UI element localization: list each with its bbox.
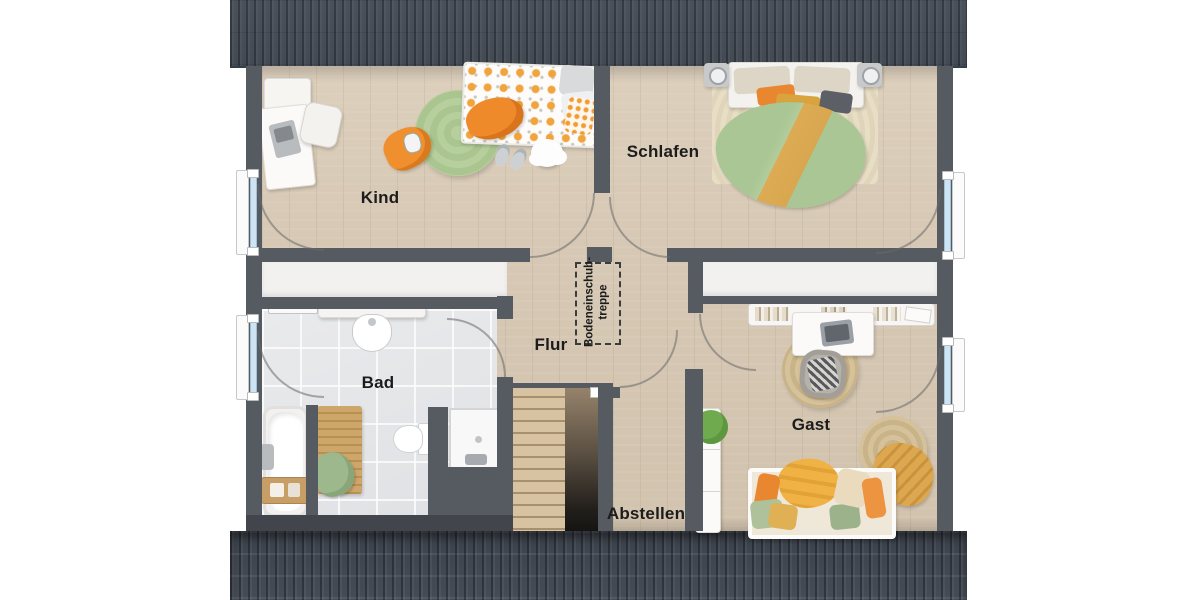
- window-cap-gast-bottom: [942, 404, 954, 413]
- bad-shower-fixture: [465, 454, 487, 465]
- bad-caddy-item1: [270, 483, 284, 497]
- window-cap-bad-bottom: [247, 392, 259, 401]
- attic-hatch-label: Bodeneinschub- treppe: [583, 257, 612, 347]
- wall-bad-bottom: [246, 515, 513, 531]
- wall-kind-bottom: [262, 248, 530, 262]
- roof-band-top: [230, 0, 967, 68]
- window-glass-bad: [250, 317, 257, 398]
- attic-hatch-label-line2: treppe: [598, 284, 610, 319]
- gast-books-3: [873, 307, 901, 321]
- window-glass-schlafen: [944, 174, 951, 257]
- schlafen-nightstand-right: [857, 63, 882, 87]
- window-frame-gast: [952, 338, 965, 412]
- schlafen-lamp-left: [709, 67, 727, 85]
- gast-laptop-screen: [824, 324, 850, 343]
- wall-kind-schlafen: [594, 66, 610, 193]
- bad-toilet-bowl: [393, 425, 423, 453]
- room-label-abstellen: Abstellen: [607, 504, 685, 524]
- exterior-wall-right: [937, 66, 953, 531]
- wall-bad-right-upper: [497, 296, 513, 319]
- wall-tub-partition: [306, 405, 318, 517]
- room-label-kind: Kind: [361, 188, 400, 208]
- wall-corner-stair: [598, 387, 620, 398]
- knee-wall-schlafen: [692, 262, 937, 297]
- bad-shower-drain: [475, 436, 482, 443]
- gast-pillow-mustard: [767, 502, 798, 531]
- window-cap-gast-top: [942, 337, 954, 346]
- room-label-schlafen: Schlafen: [627, 142, 699, 162]
- room-label-bad: Bad: [362, 373, 395, 393]
- knee-wall-kind: [262, 262, 507, 298]
- gast-shelf-box: [904, 306, 932, 323]
- kind-pillow-dotted: [563, 96, 596, 136]
- gast-books-1: [755, 307, 789, 321]
- stairwell-void: [565, 386, 598, 531]
- wall-gast-top: [690, 296, 937, 304]
- room-label-gast: Gast: [792, 415, 831, 435]
- window-cap-bad-top: [247, 314, 259, 323]
- room-label-flur: Flur: [535, 335, 568, 355]
- exterior-wall-left: [246, 66, 262, 531]
- roof-band-bottom: [230, 531, 967, 600]
- window-cap-kind-bottom: [247, 247, 259, 256]
- bad-tub-faucet: [260, 444, 274, 470]
- floor-plan-canvas: Bodeneinschub- treppe Kind Schlafen Flur…: [0, 0, 1200, 600]
- window-cap-schlafen-bottom: [942, 251, 954, 260]
- window-glass-gast: [944, 340, 951, 410]
- bad-sink: [352, 314, 392, 352]
- bad-sink-drain: [368, 318, 376, 326]
- attic-hatch-label-line1: Bodeneinschub-: [584, 257, 596, 347]
- window-cap-kind-top: [247, 169, 259, 178]
- kind-cloud-table: [531, 139, 563, 167]
- wall-schlafen-bottom: [667, 248, 937, 262]
- bad-caddy-item2: [288, 483, 300, 497]
- window-cap-schlafen-top: [942, 171, 954, 180]
- wall-gast-left-lower: [685, 369, 703, 531]
- wall-toilet-back: [428, 407, 448, 469]
- wall-bad-top: [262, 297, 510, 309]
- window-frame-bad: [236, 315, 249, 400]
- wall-gast-left-upper: [688, 257, 703, 313]
- window-frame-schlafen: [952, 172, 965, 259]
- kind-laptop-screen: [273, 125, 294, 143]
- window-frame-kind: [236, 170, 249, 255]
- gast-laptop: [820, 319, 855, 347]
- schlafen-nightstand-left: [704, 63, 729, 87]
- staircase-treads: [513, 386, 565, 531]
- window-glass-kind: [250, 172, 257, 253]
- bad-tub-caddy: [261, 477, 311, 504]
- schlafen-lamp-right: [862, 67, 880, 85]
